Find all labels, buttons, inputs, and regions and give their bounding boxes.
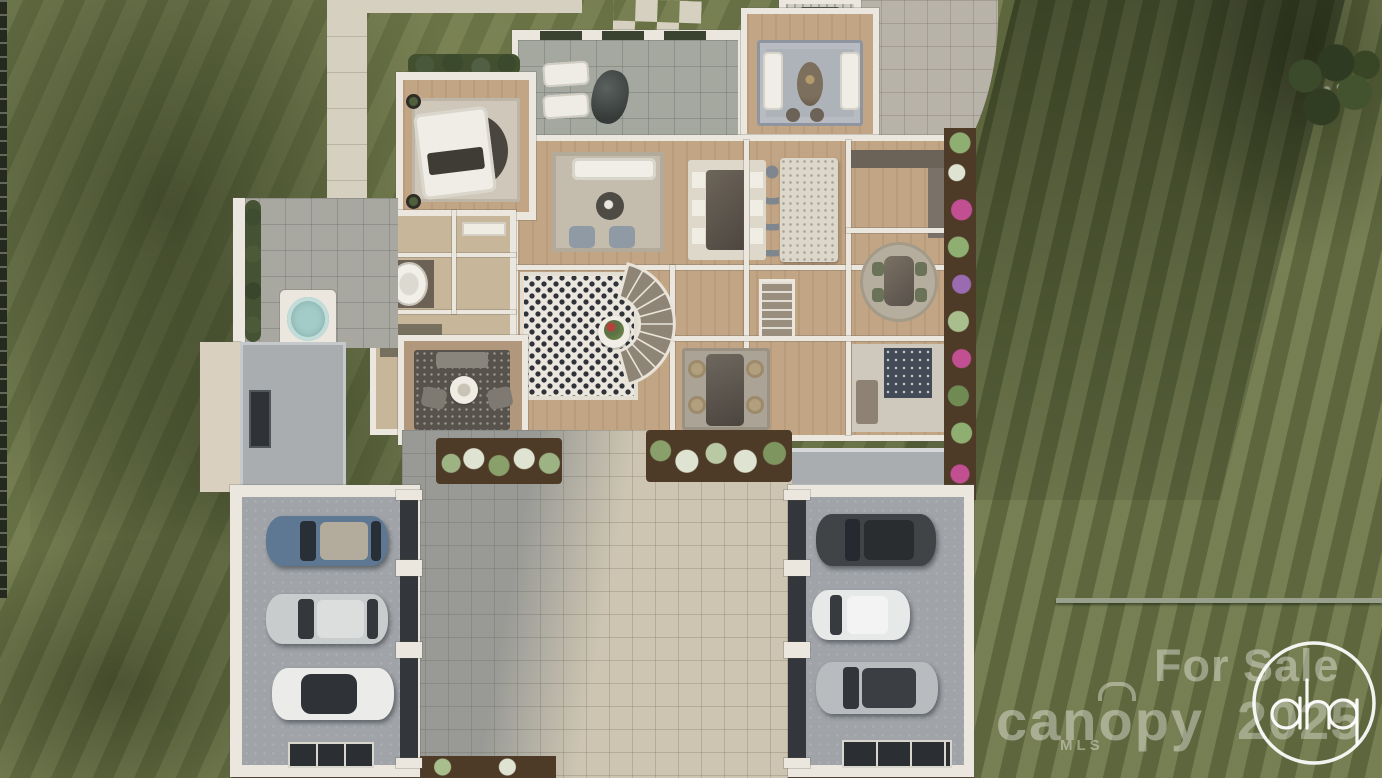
plant-pot xyxy=(406,194,421,209)
dining-chairs-right xyxy=(750,172,763,248)
bench xyxy=(856,380,878,424)
kitchen-counter xyxy=(846,150,946,168)
car-roof xyxy=(317,600,363,638)
door-pier xyxy=(784,560,810,576)
coffee-table xyxy=(596,192,624,220)
mudroom-tile xyxy=(884,348,932,398)
straight-staircase xyxy=(762,282,792,336)
planting-bed xyxy=(646,430,792,482)
armchair xyxy=(569,226,595,248)
chair xyxy=(915,288,927,302)
chair xyxy=(746,396,764,414)
roof-cream xyxy=(200,342,240,492)
kitchen-island xyxy=(780,158,838,262)
canopy-arc xyxy=(1098,682,1136,701)
door-pier xyxy=(396,560,422,576)
windshield xyxy=(845,519,861,561)
terrace-wall xyxy=(233,198,245,350)
plant-pot xyxy=(406,94,421,109)
patio-table xyxy=(450,376,478,404)
hot-tub xyxy=(287,297,329,341)
lounge-chair xyxy=(542,92,590,119)
bar-stools xyxy=(766,164,779,260)
car-roof xyxy=(847,596,888,634)
ottoman xyxy=(810,108,824,122)
planting-bed xyxy=(436,438,562,484)
door-pier xyxy=(784,490,810,500)
table xyxy=(706,354,744,426)
watermark-mls: MLS xyxy=(1060,737,1104,754)
chair xyxy=(915,262,927,276)
car-canopy xyxy=(301,674,357,714)
chair xyxy=(746,360,764,378)
aerial-property-photo: For Sale canopy MLS 2025 xyxy=(0,0,1382,778)
windshield xyxy=(300,521,316,561)
car-sports-white xyxy=(272,668,394,720)
car-compact-white xyxy=(812,590,910,640)
door-pier xyxy=(396,642,422,658)
tree xyxy=(1272,32,1382,142)
outdoor-loveseat xyxy=(436,352,488,368)
ornate-table xyxy=(797,62,823,106)
car-sedan-silver xyxy=(266,594,388,644)
windshield xyxy=(298,599,314,639)
parapet-hedge xyxy=(664,31,706,40)
wall xyxy=(674,336,948,341)
ottoman xyxy=(786,108,800,122)
chair xyxy=(872,288,884,302)
garage-door-track xyxy=(788,497,806,765)
wall xyxy=(846,228,948,233)
chair xyxy=(688,360,706,378)
dining-chairs-left xyxy=(692,172,705,248)
car-suv-blue xyxy=(266,516,388,566)
windshield xyxy=(843,667,859,709)
windshield xyxy=(830,595,843,635)
door-pier xyxy=(784,642,810,658)
door-pier xyxy=(396,758,422,768)
skylight xyxy=(249,390,271,448)
chair xyxy=(872,262,884,276)
rear-window xyxy=(367,599,378,639)
flower-border xyxy=(944,128,976,500)
garage-window xyxy=(842,740,952,768)
curved-staircase xyxy=(598,258,684,394)
car-suv-dark xyxy=(816,514,936,566)
wall xyxy=(452,210,456,314)
ahp-logo xyxy=(1248,638,1380,770)
door-pier xyxy=(396,490,422,500)
breakfast-table xyxy=(884,256,914,306)
fence-left xyxy=(0,0,7,598)
vanity xyxy=(462,222,506,236)
sofa xyxy=(840,52,860,110)
hedge xyxy=(245,200,261,342)
sofa xyxy=(572,158,656,180)
parapet-hedge xyxy=(602,31,644,40)
armchair xyxy=(609,226,635,248)
rear-window xyxy=(371,521,381,561)
car-roof xyxy=(862,668,916,708)
car-sedan-gray xyxy=(816,662,938,714)
car-roof xyxy=(320,522,369,560)
sidewalk-top xyxy=(327,0,582,13)
door-pier xyxy=(784,758,810,768)
car-roof xyxy=(864,520,914,560)
garage-door-track xyxy=(400,497,418,765)
fence-right xyxy=(1056,598,1382,603)
lounge-chair xyxy=(542,60,590,87)
dining-table xyxy=(706,170,748,250)
chair xyxy=(688,396,706,414)
sidewalk-vertical xyxy=(327,0,367,200)
wall xyxy=(846,140,851,435)
parapet-hedge xyxy=(540,31,582,40)
garage-window xyxy=(288,742,374,768)
sofa xyxy=(763,52,783,110)
